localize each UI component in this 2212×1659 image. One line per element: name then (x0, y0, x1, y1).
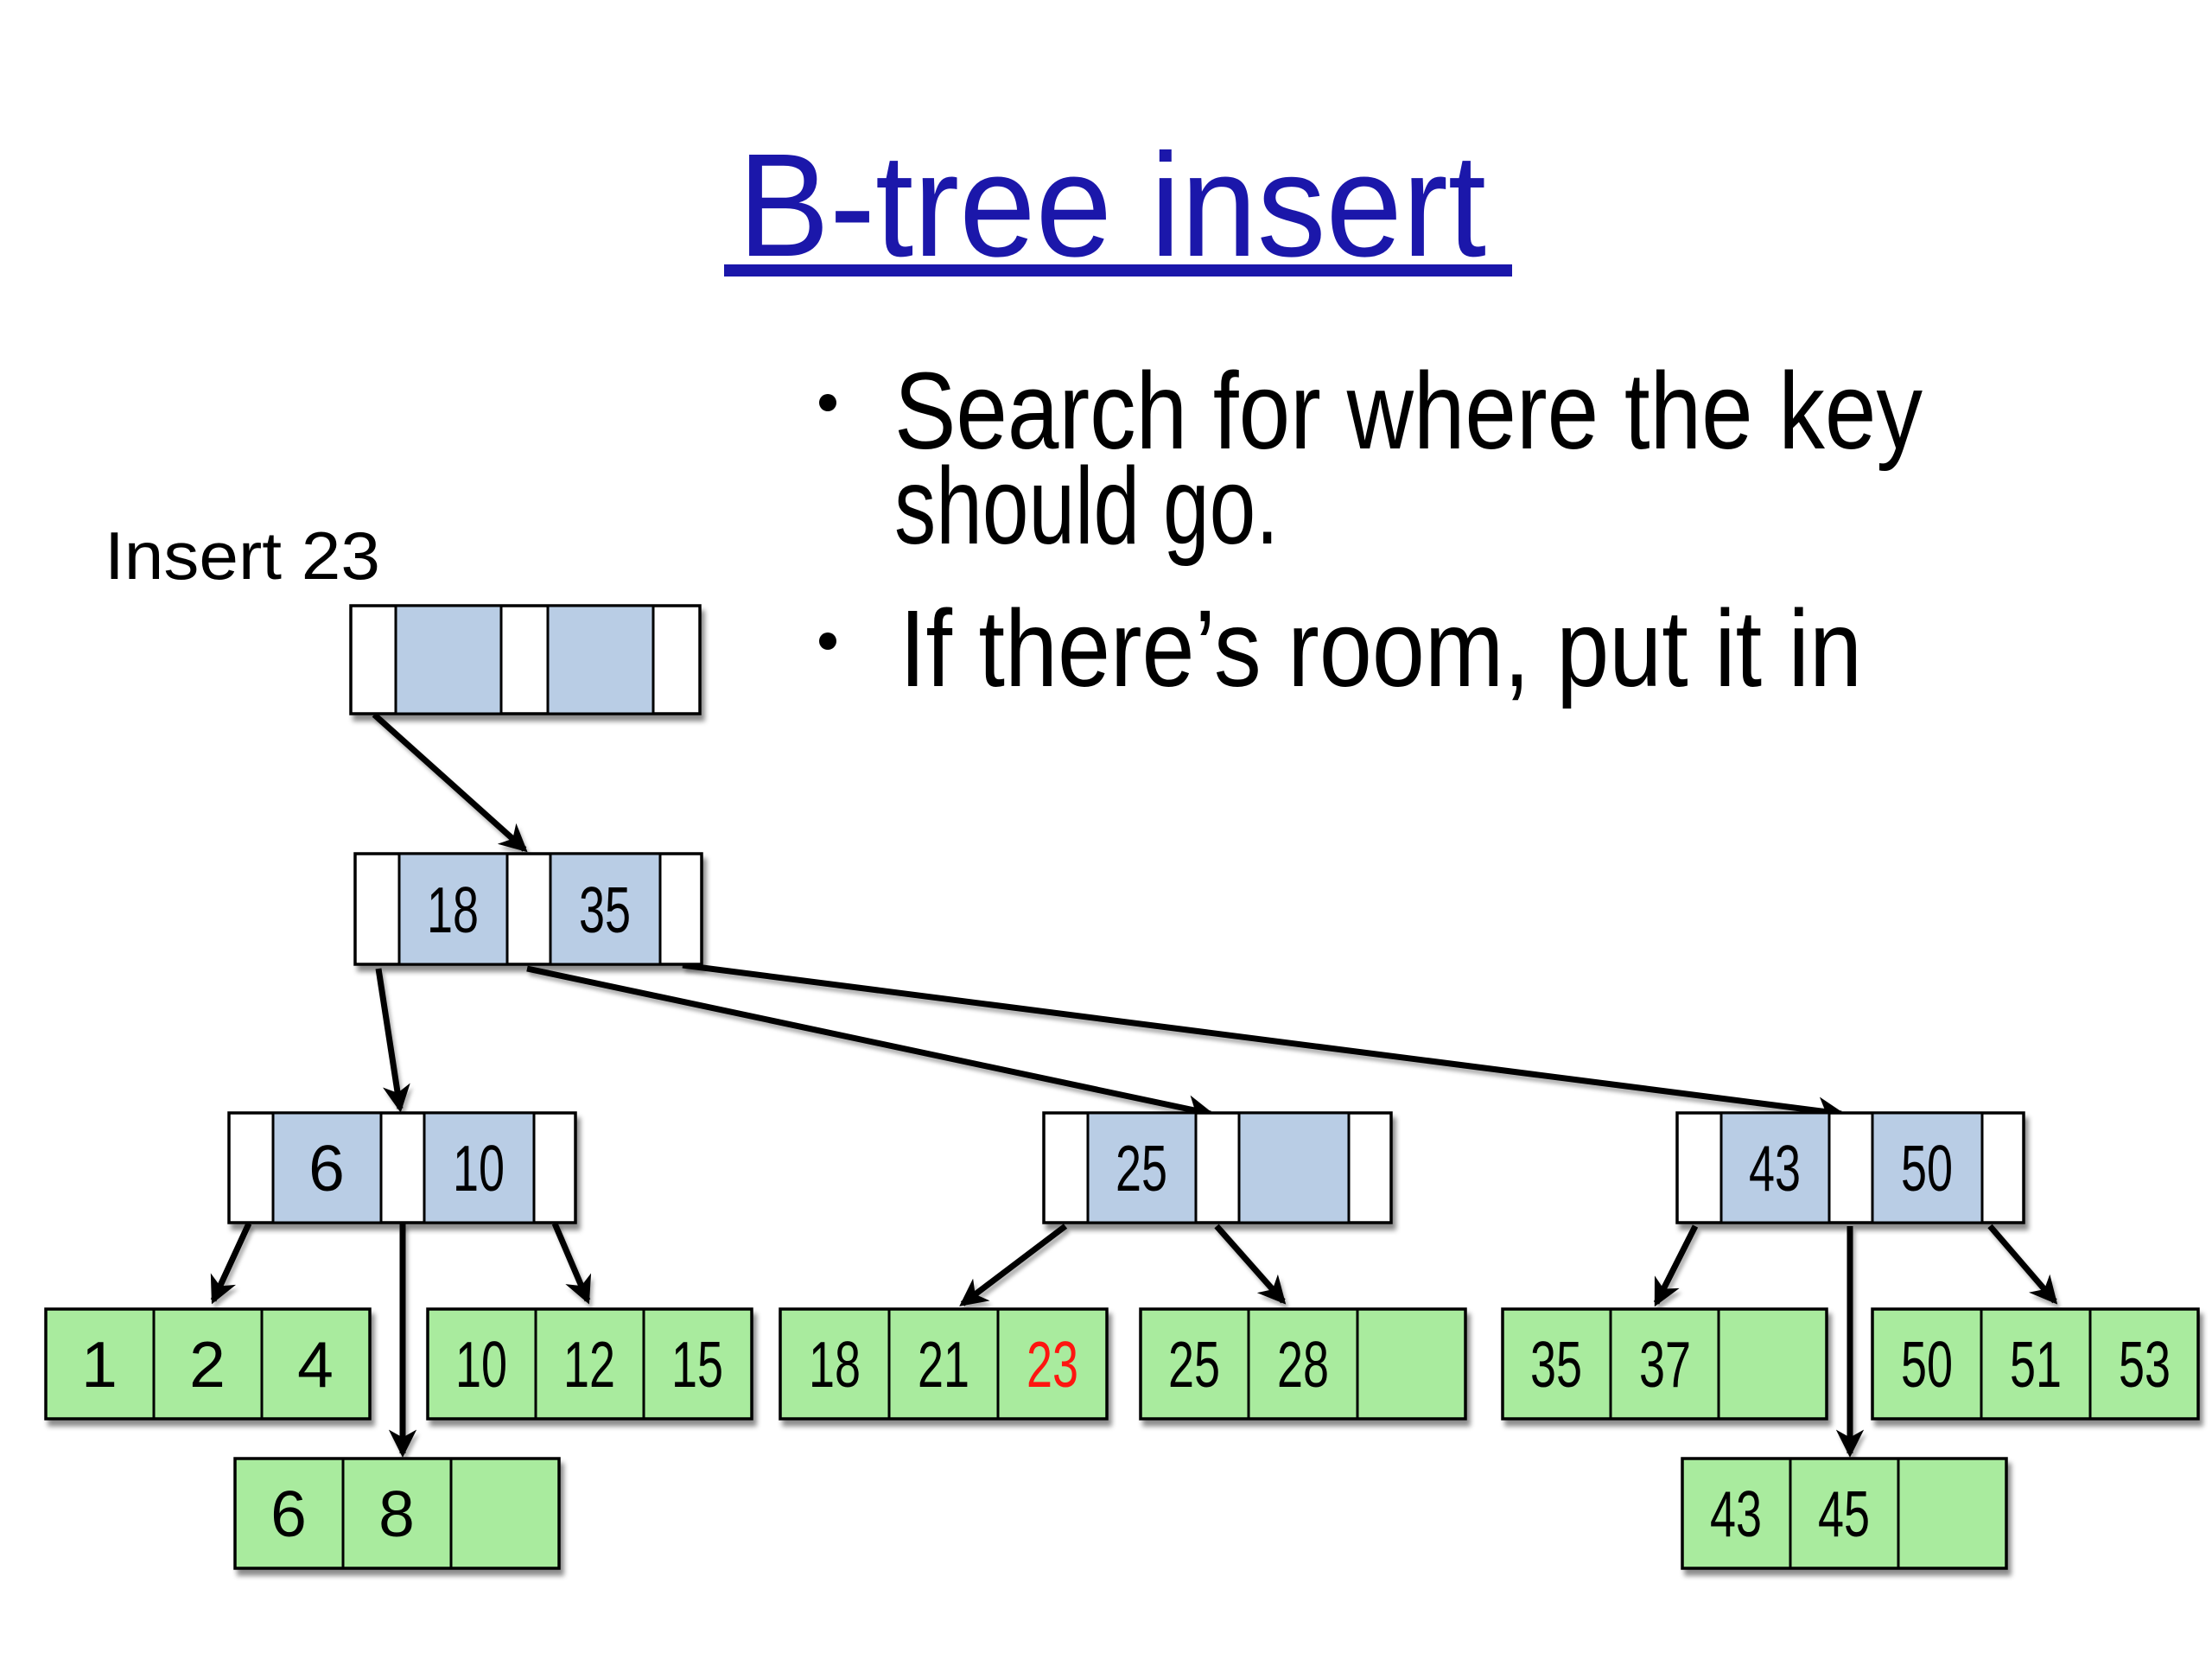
svg-text:18: 18 (809, 1328, 861, 1401)
svg-text:25: 25 (1168, 1328, 1220, 1401)
svg-text:6: 6 (308, 1132, 345, 1205)
svg-text:43: 43 (1749, 1132, 1801, 1205)
svg-text:18: 18 (427, 874, 479, 946)
svg-text:2: 2 (189, 1328, 226, 1401)
svg-text:35: 35 (579, 874, 631, 946)
svg-text:12: 12 (563, 1328, 615, 1401)
svg-text:37: 37 (1639, 1328, 1691, 1401)
svg-text:21: 21 (918, 1328, 969, 1401)
svg-text:35: 35 (1530, 1328, 1582, 1401)
svg-text:50: 50 (1901, 1132, 1953, 1205)
svg-text:4: 4 (297, 1328, 334, 1401)
svg-text:B-tree insert: B-tree insert (738, 124, 1486, 288)
svg-text:should go.: should go. (894, 445, 1279, 567)
svg-text:28: 28 (1277, 1328, 1329, 1401)
svg-text:50: 50 (1901, 1328, 1953, 1401)
svg-text:45: 45 (1818, 1478, 1870, 1550)
svg-text:53: 53 (2119, 1328, 2171, 1401)
svg-text:43: 43 (1710, 1478, 1762, 1550)
svg-text:If there’s room, put it in: If there’s room, put it in (899, 588, 1862, 709)
svg-text:23: 23 (1027, 1328, 1078, 1401)
svg-text:15: 15 (671, 1328, 723, 1401)
svg-text:6: 6 (270, 1478, 307, 1550)
svg-text:Insert 23: Insert 23 (105, 518, 380, 594)
svg-text:8: 8 (378, 1478, 415, 1550)
svg-text:10: 10 (453, 1132, 505, 1205)
svg-text:51: 51 (2010, 1328, 2062, 1401)
svg-text:25: 25 (1116, 1132, 1167, 1205)
svg-text:10: 10 (455, 1328, 507, 1401)
svg-text:1: 1 (81, 1328, 118, 1401)
